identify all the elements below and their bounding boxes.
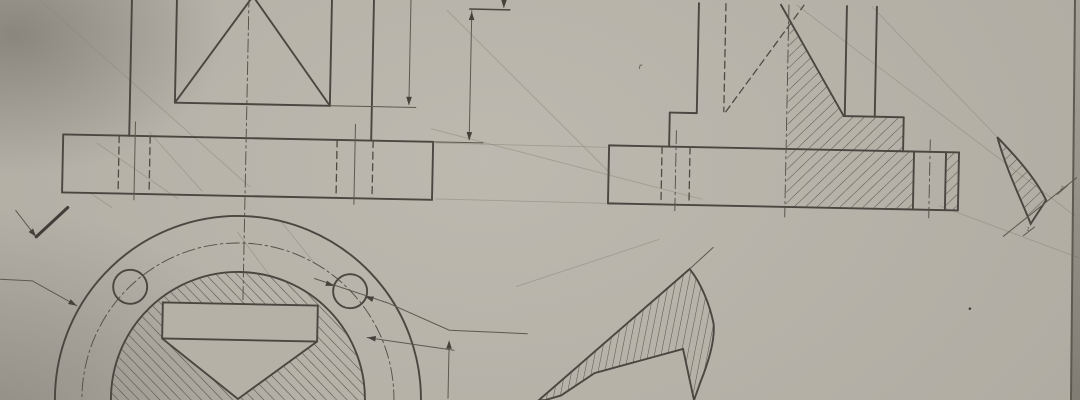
drawing-photo: r 21 [0, 0, 1080, 400]
pencil-line [280, 221, 316, 264]
prism-left-edge [175, 0, 177, 103]
extension-line [330, 106, 416, 108]
technical-drawing-canvas: r 21 [0, 0, 1080, 400]
pen-marks [15, 206, 68, 239]
extension-line [470, 9, 510, 10]
tick-label: 1 [1026, 227, 1029, 233]
bolt-hole-axis [675, 131, 677, 211]
projection-line [435, 199, 606, 203]
shoulder-top-edge [844, 116, 904, 117]
pencil-line [236, 232, 271, 277]
miter-line [24, 0, 254, 187]
ink-dot [969, 307, 972, 310]
plan-view [51, 212, 424, 400]
shoulder-left-edge [669, 113, 670, 147]
auxiliary-oblique-section [539, 244, 715, 400]
partial-section-leaf [996, 137, 1048, 224]
pen-check-stroke [36, 207, 68, 238]
hidden-edge [724, 4, 726, 112]
page-edge [1071, 0, 1080, 400]
prism-right-edge [330, 0, 332, 106]
drawing-sheet: r 21 [0, 0, 1080, 400]
hidden-hole-edge [149, 136, 150, 194]
section-hatch-shoulder [787, 115, 904, 151]
diameter-leader [0, 279, 77, 306]
hole-cut-edge [945, 152, 946, 210]
pen-mark-r: r [639, 62, 643, 71]
hidden-hole-edge [118, 136, 119, 194]
arrowhead [469, 12, 475, 21]
hole-axis [134, 122, 136, 200]
cone-edge [175, 0, 253, 104]
shoulder-top-edge [670, 113, 697, 114]
dimension-line [469, 11, 472, 140]
flange-right-edge [958, 152, 959, 210]
pencil-line [148, 132, 203, 191]
oblique-section-shape [539, 266, 715, 400]
flange-right-edge [432, 142, 433, 200]
shoulder-right-edge [903, 117, 904, 151]
column-left-edge [129, 0, 132, 136]
dimension-line [409, 0, 411, 104]
arrowhead [446, 340, 452, 349]
hidden-hole-edge [336, 140, 337, 198]
miter-line [444, 10, 614, 173]
column-right-edge [371, 0, 374, 141]
flange-left-edge [62, 134, 63, 192]
hole-diameter-line [313, 278, 528, 333]
section-trace-line [690, 247, 713, 269]
hole-axis [354, 124, 356, 204]
pencil-line [90, 193, 112, 207]
hidden-hole-edge [661, 146, 662, 204]
column-left-edge [697, 3, 699, 113]
column-inner-edge [845, 6, 847, 116]
cone-edge [251, 0, 332, 106]
construction-lines [22, 0, 1080, 298]
dimension-line [448, 343, 449, 398]
section-hatch-flange-right [945, 152, 959, 210]
arrowhead [68, 299, 78, 308]
column-right-edge [875, 7, 877, 117]
projection-line [436, 143, 607, 147]
side-section-view: r [606, 1, 977, 310]
projection-line [516, 237, 659, 290]
flange-left-edge [608, 145, 609, 203]
arrowhead [501, 0, 507, 8]
arrowhead [406, 97, 412, 106]
hole-cut-edge [913, 151, 914, 209]
prism-base-edge [175, 103, 330, 106]
section-hatch-flange [786, 149, 914, 210]
partial-section-detail: 21 [995, 137, 1077, 238]
hidden-hole-edge [372, 141, 373, 199]
tick-label: 2 [1060, 185, 1063, 191]
